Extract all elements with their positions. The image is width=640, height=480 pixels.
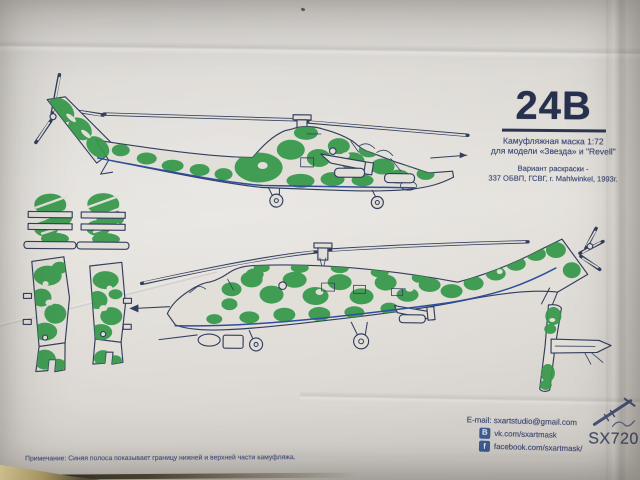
helicopter-bottom-profile [129, 224, 603, 354]
title-block: 24B Камуфляжная маска 1:72 для модели «З… [481, 85, 627, 184]
facebook-link-text: facebook.com/sxartmask/ [494, 442, 583, 453]
scheme-code: 24B [481, 85, 626, 126]
wing-panel-part-right [87, 262, 132, 366]
pitot-probe [431, 152, 467, 158]
mask-subtitle-line2: для модели «Звезда» и "Revell" [481, 146, 626, 158]
wing-top-view-part-right [77, 193, 129, 249]
horizontal-stabilizer [581, 256, 600, 269]
vk-link-text: vk.com/sxartmask [494, 429, 557, 440]
title-divider-rule [501, 129, 605, 133]
tail-skid [101, 160, 113, 174]
product-code: SX720 [588, 430, 639, 448]
wing-top-view-part-left [24, 193, 76, 248]
pitot-probe [129, 304, 169, 312]
camouflage-scheme-artwork [0, 0, 640, 480]
rotor-hub [293, 115, 311, 120]
tail-rotor [580, 228, 603, 253]
tail-fin-part [540, 305, 612, 392]
photographed-instruction-sheet: 24B Камуфляжная маска 1:72 для модели «З… [0, 0, 640, 480]
rotor-hub [314, 243, 332, 248]
airbrush-logo-icon [590, 396, 638, 430]
contact-block: E-mail: sxartstudio@gmail.com B vk.com/s… [466, 415, 583, 454]
wing-panel-part-left [23, 256, 70, 371]
nose-equipment [159, 334, 243, 349]
vk-row: B vk.com/sxartmask [479, 427, 583, 441]
vk-icon: B [479, 427, 490, 438]
email-text: E-mail: sxartstudio@gmail.com [467, 415, 584, 427]
printed-content: 24B Камуфляжная маска 1:72 для модели «З… [0, 0, 640, 480]
facebook-icon: f [479, 441, 490, 452]
variant-line2: 337 ОБВП, ГСВГ, г. Mahlwinkel, 1993г. [481, 173, 626, 184]
helicopter-top-profile [35, 75, 468, 210]
